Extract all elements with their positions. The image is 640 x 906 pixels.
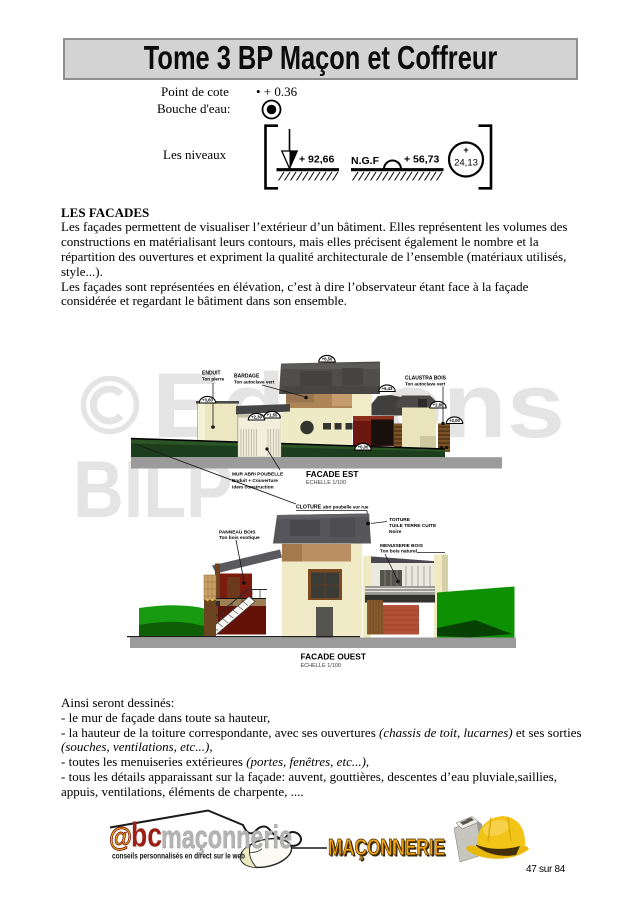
svg-text:Enduit + Couverture: Enduit + Couverture <box>232 478 278 484</box>
svg-text:Ton autoclave vert: Ton autoclave vert <box>234 380 275 385</box>
svg-text:@: @ <box>109 822 132 852</box>
svg-text:+0,00: +0,00 <box>358 445 369 450</box>
svg-text:N.G.F: N.G.F <box>351 155 380 167</box>
svg-text:+1,55: +1,55 <box>267 413 278 418</box>
svg-text:24,13: 24,13 <box>454 158 478 169</box>
svg-text:FACADE OUEST: FACADE OUEST <box>301 652 367 662</box>
svg-text:TOITURE: TOITURE <box>389 517 411 523</box>
svg-text:Ton autoclave vert: Ton autoclave vert <box>405 382 446 387</box>
svg-text:idem construction: idem construction <box>232 485 274 491</box>
svg-text:conseils personnalisés en dire: conseils personnalisés en direct sur le … <box>112 851 245 861</box>
svg-text:+3,60: +3,60 <box>202 398 213 403</box>
svg-text:TUILE TERRE CUITE: TUILE TERRE CUITE <box>389 523 437 529</box>
svg-text:MENUISERIE BOIS: MENUISERIE BOIS <box>380 543 424 549</box>
svg-text:MAÇONNERIE: MAÇONNERIE <box>328 834 445 860</box>
svg-text:Ton bois exotique: Ton bois exotique <box>219 535 260 541</box>
svg-text:+2,00: +2,00 <box>449 418 460 423</box>
svg-text:CLOTURE: CLOTURE <box>296 505 322 511</box>
svg-text:abri poubelle sur rue: abri poubelle sur rue <box>323 505 369 510</box>
svg-text:+ 56,73: + 56,73 <box>404 154 439 166</box>
svg-text:+6,50: +6,50 <box>322 357 333 362</box>
svg-text:ECHELLE 1/100: ECHELLE 1/100 <box>306 480 346 486</box>
svg-text:bc: bc <box>131 817 162 855</box>
svg-text:MUR ABRI POUBELLE: MUR ABRI POUBELLE <box>232 472 284 478</box>
svg-text:FACADE EST: FACADE EST <box>306 469 359 479</box>
svg-text:+: + <box>463 145 468 155</box>
svg-text:Ton bois naturel: Ton bois naturel <box>380 549 417 555</box>
svg-text:+ 92,66: + 92,66 <box>299 154 334 166</box>
svg-text:+2,80: +2,80 <box>433 403 444 408</box>
svg-text:PANNEAU BOIS: PANNEAU BOIS <box>219 530 256 536</box>
svg-text:Ton pierre: Ton pierre <box>202 377 225 382</box>
svg-text:Noire: Noire <box>389 529 402 535</box>
svg-text:+6,43: +6,43 <box>382 386 393 391</box>
svg-text:+2,30: +2,30 <box>251 415 262 420</box>
svg-text:ECHELLE 1/100: ECHELLE 1/100 <box>301 663 342 669</box>
